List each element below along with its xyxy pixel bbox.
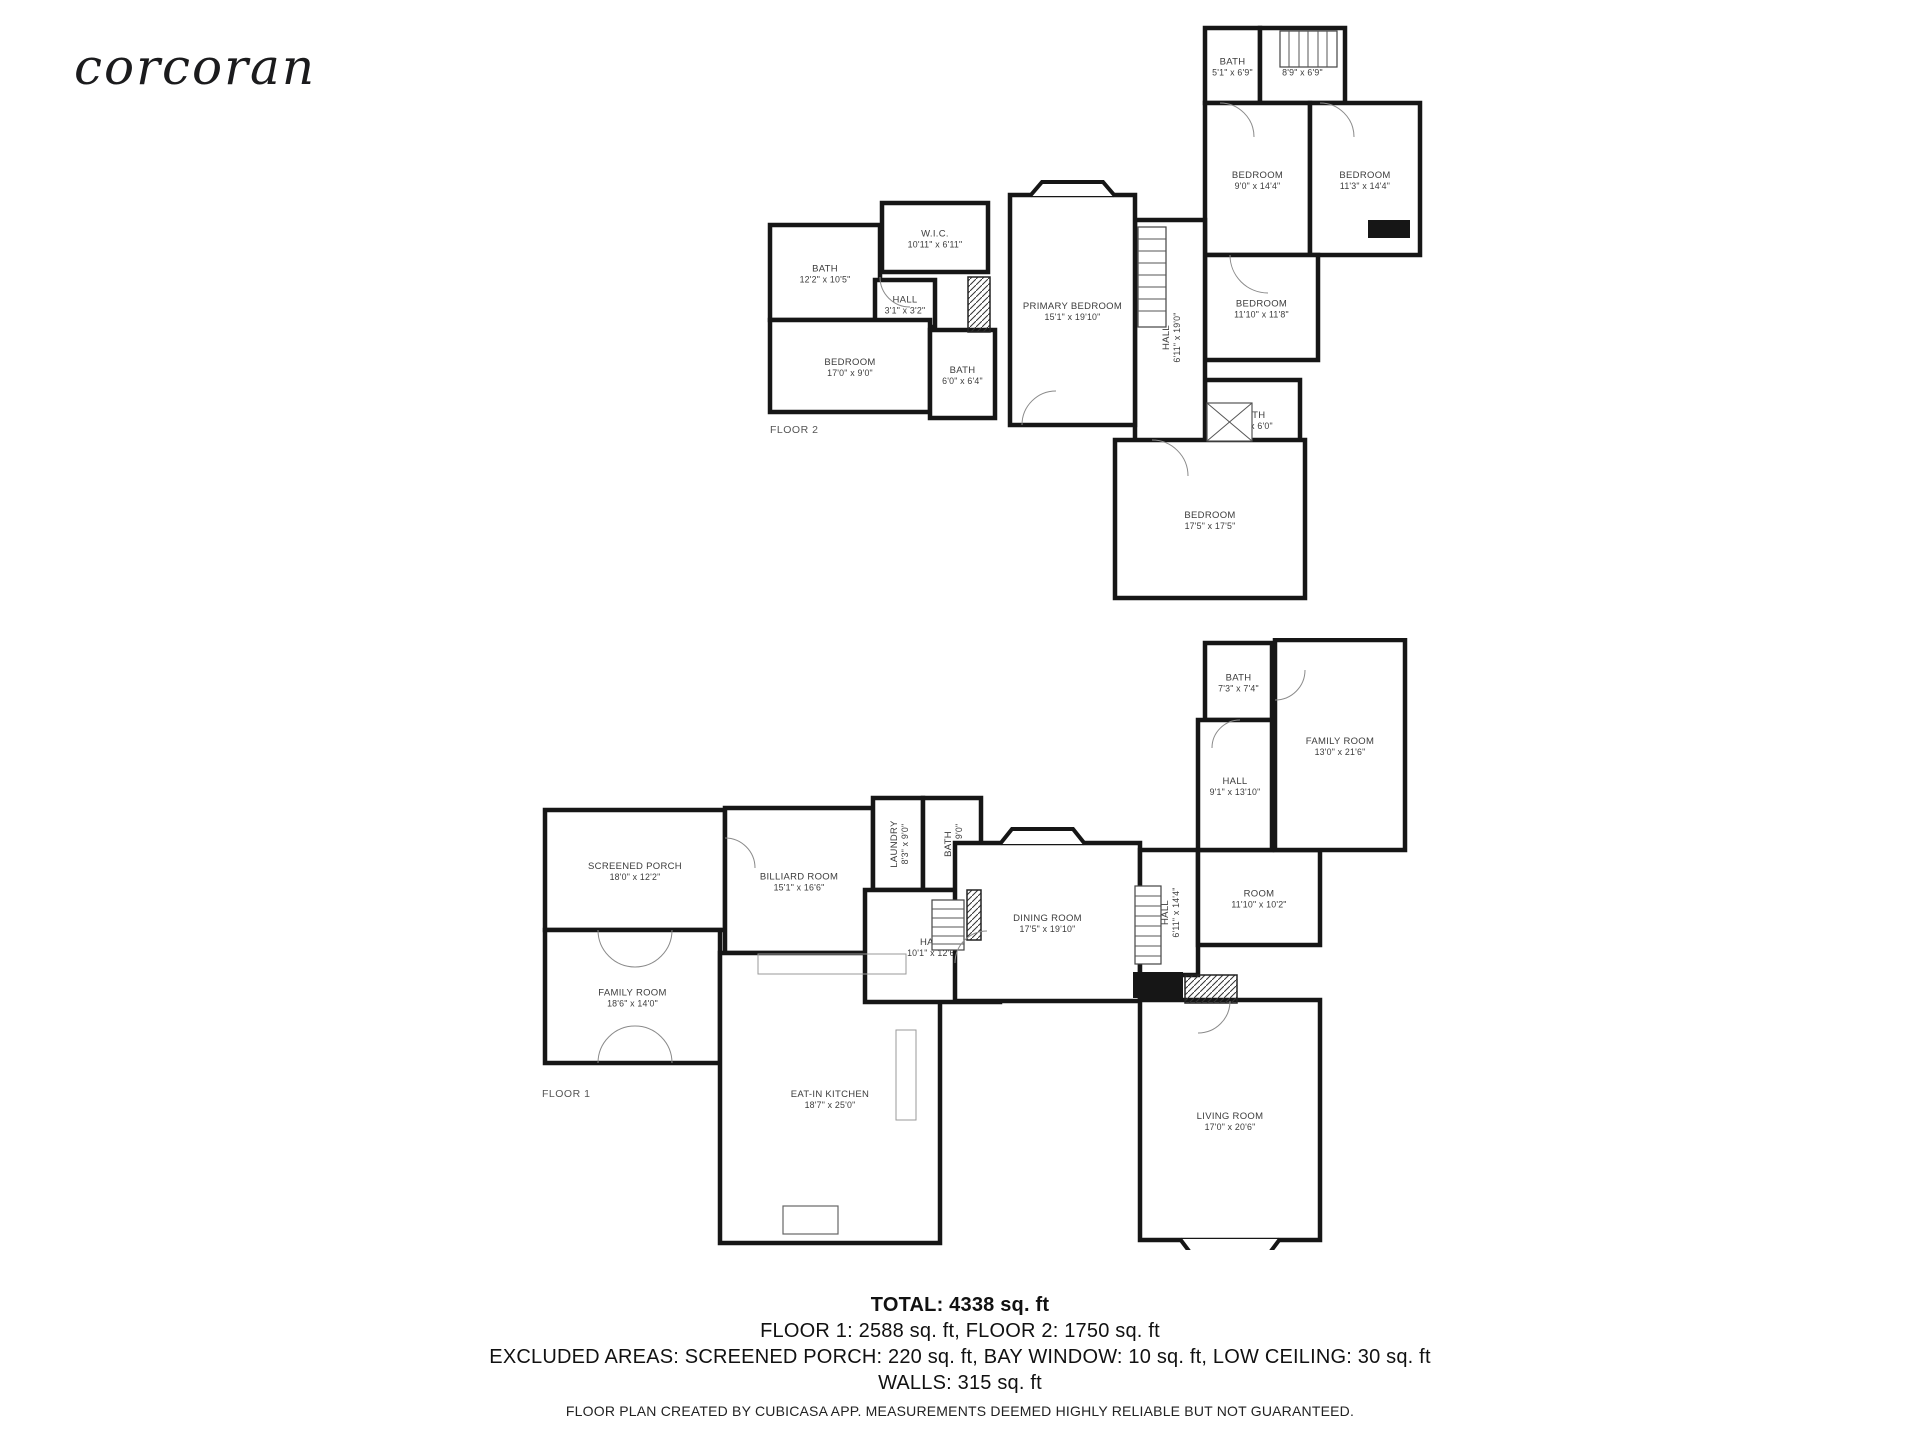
room-label: LAUNDRY8'3" x 9'0" <box>889 820 910 868</box>
room-living-room: LIVING ROOM17'0" x 20'6" <box>1140 1000 1320 1240</box>
floor-plan-page: corcoran BATH5'1" x 6'9"HALL8'9" x 6'9"B… <box>0 0 1920 1440</box>
floor2-label: FLOOR 2 <box>770 424 818 436</box>
floor1-label: FLOOR 1 <box>542 1088 590 1100</box>
room-family-room: FAMILY ROOM18'6" x 14'0" <box>545 930 720 1063</box>
room-label: DINING ROOM17'5" x 19'10" <box>1013 913 1082 934</box>
room-screened-porch: SCREENED PORCH18'0" x 12'2" <box>545 810 725 930</box>
room-bedroom: BEDROOM17'0" x 9'0" <box>770 320 930 412</box>
room-dining-room: DINING ROOM17'5" x 19'10" <box>955 843 1140 1001</box>
room-label: FAMILY ROOM18'6" x 14'0" <box>598 988 666 1009</box>
stairs-icon <box>1280 31 1337 67</box>
walls-area: WALLS: 315 sq. ft <box>0 1370 1920 1396</box>
excluded-areas: EXCLUDED AREAS: SCREENED PORCH: 220 sq. … <box>0 1344 1920 1370</box>
room-bath: BATH5'1" x 6'9" <box>1205 28 1260 103</box>
bay-window <box>1000 829 1085 844</box>
fireplace-hatch <box>1185 975 1237 1003</box>
disclaimer: FLOOR PLAN CREATED BY CUBICASA APP. MEAS… <box>0 1403 1920 1419</box>
chimney-hatch <box>968 277 990 332</box>
room-label: BEDROOM11'10" x 11'8" <box>1234 299 1289 320</box>
room-label: BEDROOM11'3" x 14'4" <box>1339 170 1390 191</box>
room-family-room: FAMILY ROOM13'0" x 21'6" <box>1275 640 1405 850</box>
bay-window <box>1030 182 1115 196</box>
bay-window <box>1180 1239 1280 1250</box>
floor-areas: FLOOR 1: 2588 sq. ft, FLOOR 2: 1750 sq. … <box>0 1318 1920 1344</box>
room-hall: HALL9'1" x 13'10" <box>1198 720 1272 850</box>
fireplace <box>1368 220 1410 238</box>
room-label: BEDROOM17'5" x 17'5" <box>1184 510 1235 531</box>
room-label: BEDROOM17'0" x 9'0" <box>824 357 875 378</box>
room-primary-bedroom: PRIMARY BEDROOM15'1" x 19'10" <box>1010 195 1135 425</box>
room-room: ROOM11'10" x 10'2" <box>1198 850 1320 945</box>
room-label: FAMILY ROOM13'0" x 21'6" <box>1306 736 1374 757</box>
room-bath: BATH6'0" x 6'4" <box>930 330 995 418</box>
room-bedroom: BEDROOM9'0" x 14'4" <box>1205 103 1310 255</box>
corcoran-logo: corcoran <box>74 38 316 96</box>
room-laundry: LAUNDRY8'3" x 9'0" <box>873 798 923 890</box>
shower-icon <box>1207 403 1252 441</box>
stairs-icon <box>1135 886 1161 964</box>
room-billiard-room: BILLIARD ROOM15'1" x 16'6" <box>725 808 873 953</box>
kitchen-island <box>783 1206 838 1234</box>
floor2-plan: BATH5'1" x 6'9"HALL8'9" x 6'9"BEDROOM9'0… <box>760 15 1430 603</box>
room-bath: BATH7'3" x 7'4" <box>1205 643 1272 720</box>
wall-mass <box>1133 972 1183 998</box>
stairs-icon <box>1138 227 1166 327</box>
floor1-plan: SCREENED PORCH18'0" x 12'2"BILLIARD ROOM… <box>540 638 1425 1250</box>
room-w-i-c-: W.I.C.10'11" x 6'11" <box>882 203 988 272</box>
room-bedroom: BEDROOM17'5" x 17'5" <box>1115 440 1305 598</box>
room-label: BEDROOM9'0" x 14'4" <box>1232 170 1283 191</box>
room-bedroom: BEDROOM11'10" x 11'8" <box>1205 255 1318 360</box>
total-area: TOTAL: 4338 sq. ft <box>0 1292 1920 1318</box>
area-summary: TOTAL: 4338 sq. ft FLOOR 1: 2588 sq. ft,… <box>0 1292 1920 1396</box>
stairs-icon <box>932 900 964 950</box>
chimney-hatch <box>967 890 981 940</box>
room-label: LIVING ROOM17'0" x 20'6" <box>1197 1111 1264 1132</box>
room-bath: BATH12'2" x 10'5" <box>770 225 880 320</box>
